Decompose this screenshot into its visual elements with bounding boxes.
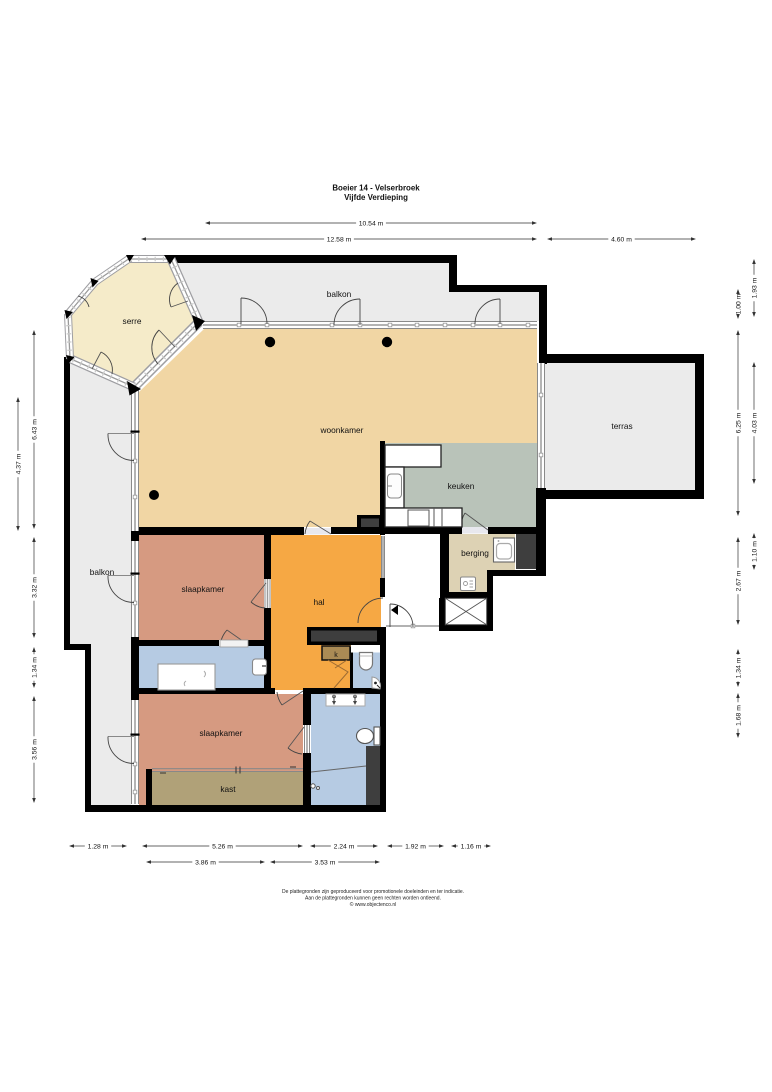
- svg-text:1.34 m: 1.34 m: [31, 657, 38, 678]
- svg-text:woonkamer: woonkamer: [320, 425, 364, 435]
- svg-text:3.53 m: 3.53 m: [315, 859, 336, 866]
- svg-text:balkon: balkon: [327, 289, 352, 299]
- svg-text:1.92 m: 1.92 m: [405, 843, 426, 850]
- svg-text:3.86 m: 3.86 m: [195, 859, 216, 866]
- svg-text:hal: hal: [313, 597, 324, 607]
- svg-text:3.56 m: 3.56 m: [31, 739, 38, 760]
- svg-text:1.28 m: 1.28 m: [88, 843, 109, 850]
- svg-text:© www.objectenco.nl: © www.objectenco.nl: [350, 901, 396, 908]
- svg-text:Aan de plattegronden kunnen ge: Aan de plattegronden kunnen geen rechten…: [305, 896, 441, 902]
- svg-text:1.93 m: 1.93 m: [751, 277, 758, 298]
- svg-text:Boeier 14 - Velserbroek: Boeier 14 - Velserbroek: [332, 184, 420, 193]
- svg-text:6.43 m: 6.43 m: [31, 419, 38, 440]
- svg-text:kast: kast: [220, 784, 236, 794]
- svg-text:berging: berging: [461, 548, 489, 558]
- svg-text:1.00 m: 1.00 m: [735, 293, 742, 314]
- svg-text:1.34 m: 1.34 m: [735, 657, 742, 678]
- svg-text:De plattegronden zijn geproduc: De plattegronden zijn geproduceerd voor …: [282, 889, 464, 895]
- svg-text:10.54 m: 10.54 m: [359, 220, 384, 227]
- svg-text:2.67 m: 2.67 m: [735, 570, 742, 591]
- svg-text:balkon: balkon: [90, 567, 115, 577]
- svg-text:1.10 m: 1.10 m: [751, 541, 758, 562]
- svg-text:12.58 m: 12.58 m: [327, 236, 352, 243]
- svg-text:2.24 m: 2.24 m: [334, 843, 355, 850]
- svg-text:5.26 m: 5.26 m: [212, 843, 233, 850]
- svg-text:4.60 m: 4.60 m: [611, 236, 632, 243]
- svg-text:slaapkamer: slaapkamer: [200, 728, 243, 738]
- svg-text:k: k: [334, 652, 338, 659]
- svg-text:slaapkamer: slaapkamer: [182, 584, 225, 594]
- svg-text:3.32 m: 3.32 m: [31, 577, 38, 598]
- svg-text:Vijfde Verdieping: Vijfde Verdieping: [344, 193, 408, 202]
- svg-text:4.03 m: 4.03 m: [751, 412, 758, 433]
- svg-text:6.25 m: 6.25 m: [735, 412, 742, 433]
- svg-text:4.37 m: 4.37 m: [15, 453, 22, 474]
- svg-text:1.16 m: 1.16 m: [461, 843, 482, 850]
- svg-text:keuken: keuken: [448, 481, 475, 491]
- svg-text:serre: serre: [123, 316, 142, 326]
- svg-text:terras: terras: [611, 421, 632, 431]
- svg-text:1.68 m: 1.68 m: [735, 705, 742, 726]
